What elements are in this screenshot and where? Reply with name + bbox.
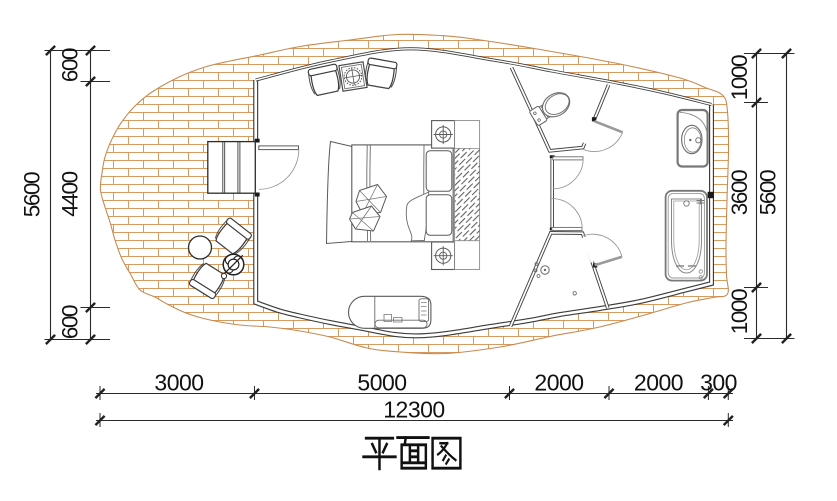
- svg-text:300: 300: [700, 370, 737, 396]
- svg-text:5600: 5600: [20, 172, 45, 217]
- svg-text:600: 600: [58, 305, 83, 339]
- svg-text:600: 600: [58, 48, 83, 82]
- svg-text:3600: 3600: [727, 170, 752, 215]
- svg-text:1000: 1000: [727, 289, 752, 334]
- svg-text:2000: 2000: [534, 370, 583, 396]
- svg-text:12300: 12300: [383, 397, 444, 423]
- svg-text:1000: 1000: [727, 55, 752, 100]
- svg-text:3000: 3000: [154, 370, 203, 396]
- svg-text:5000: 5000: [357, 370, 406, 396]
- svg-text:2000: 2000: [634, 370, 683, 396]
- svg-text:5600: 5600: [756, 170, 781, 215]
- svg-text:4400: 4400: [58, 171, 83, 216]
